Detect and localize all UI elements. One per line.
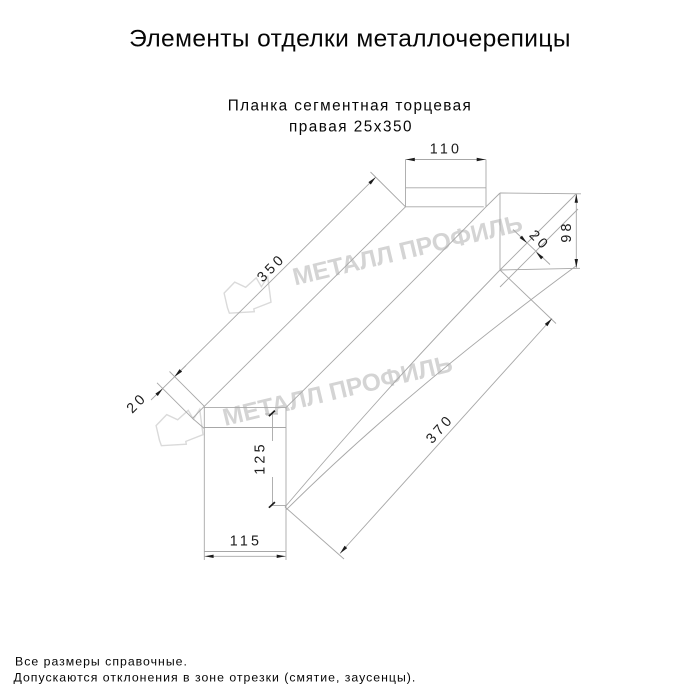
svg-text:Планка сегментная торцевая: Планка сегментная торцевая [228, 98, 472, 115]
svg-text:125: 125 [253, 441, 269, 474]
svg-text:Допускаются отклонения в зоне: Допускаются отклонения в зоне отрезки (с… [14, 671, 417, 685]
svg-text:правая 25х350: правая 25х350 [289, 119, 413, 136]
svg-text:Элементы отделки металлочерепи: Элементы отделки металлочерепицы [129, 26, 571, 53]
svg-text:110: 110 [430, 142, 462, 158]
svg-text:Все размеры справочные.: Все размеры справочные. [15, 655, 188, 669]
svg-text:98: 98 [559, 220, 575, 242]
svg-text:115: 115 [230, 534, 262, 550]
